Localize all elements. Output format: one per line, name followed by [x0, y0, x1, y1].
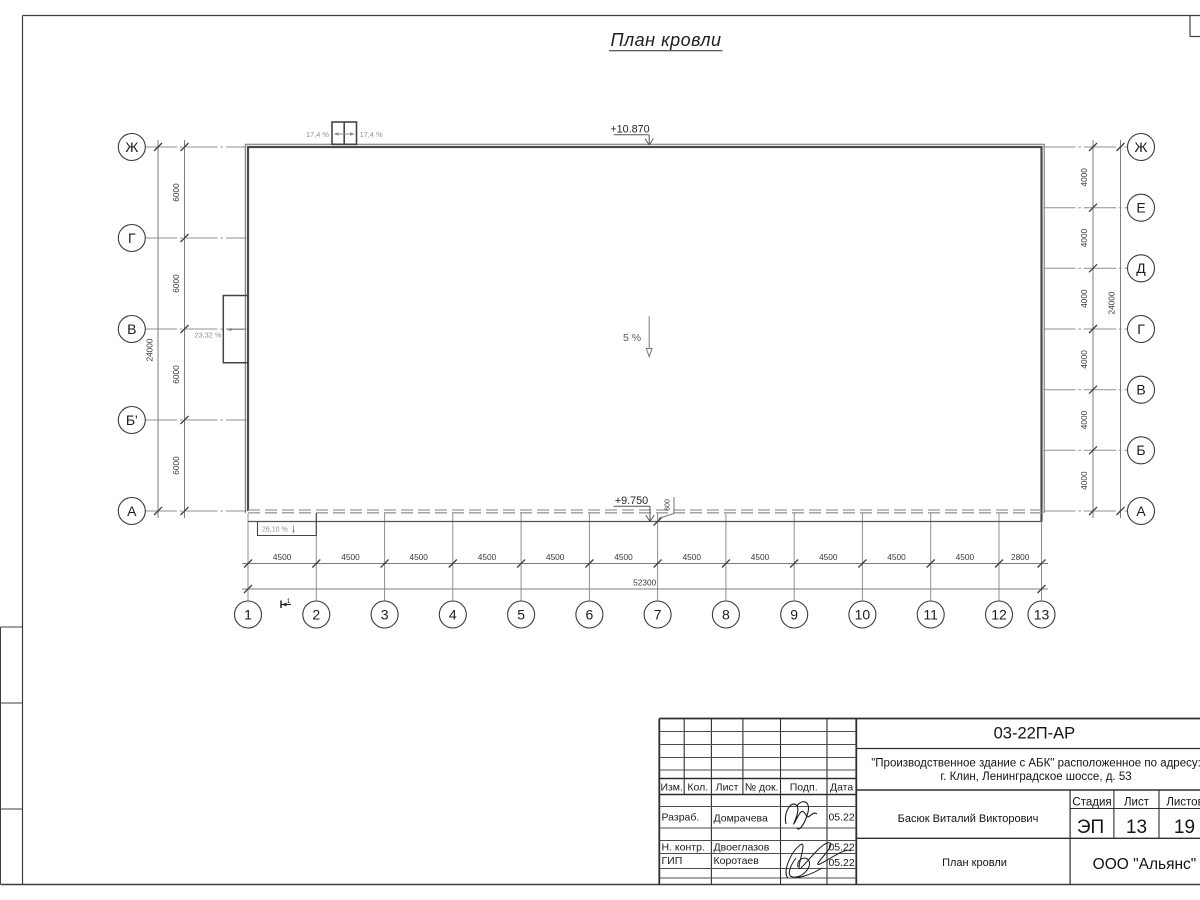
svg-text:4: 4 — [449, 606, 457, 622]
svg-text:4000: 4000 — [1079, 289, 1089, 308]
svg-text:1: 1 — [244, 606, 252, 622]
svg-text:План кровли: План кровли — [942, 857, 1007, 869]
svg-text:Домрачева: Домрачева — [714, 813, 769, 825]
svg-text:Б: Б — [1136, 442, 1145, 458]
svg-text:Е: Е — [1136, 200, 1145, 216]
svg-text:600: 600 — [665, 499, 672, 511]
svg-text:Листов: Листов — [1166, 797, 1200, 809]
svg-text:17,4 %: 17,4 % — [306, 130, 329, 139]
svg-text:Ж: Ж — [1135, 139, 1148, 155]
svg-text:24000: 24000 — [1107, 291, 1117, 314]
svg-text:4000: 4000 — [1079, 471, 1089, 490]
svg-text:Изм.: Изм. — [660, 781, 683, 793]
svg-text:05.22: 05.22 — [828, 857, 854, 869]
svg-text:19: 19 — [1174, 817, 1195, 838]
svg-text:03-22П-АР: 03-22П-АР — [994, 725, 1076, 743]
svg-text:В: В — [1136, 382, 1145, 398]
svg-text:17,4 %: 17,4 % — [360, 130, 383, 139]
svg-text:Кол.: Кол. — [687, 781, 708, 793]
svg-text:В: В — [127, 321, 136, 337]
svg-text:+9.750: +9.750 — [615, 495, 648, 507]
svg-text:11: 11 — [923, 606, 938, 622]
svg-text:Ж: Ж — [125, 139, 138, 155]
svg-text:Н. контр.: Н. контр. — [662, 842, 705, 854]
svg-text:4500: 4500 — [341, 552, 360, 562]
svg-text:Лист: Лист — [1124, 797, 1150, 809]
svg-text:1: 1 — [287, 598, 291, 605]
svg-text:ГИП: ГИП — [662, 855, 683, 867]
svg-text:6000: 6000 — [171, 456, 181, 475]
svg-text:4500: 4500 — [751, 552, 770, 562]
svg-text:4000: 4000 — [1079, 410, 1089, 429]
svg-text:5 %: 5 % — [623, 332, 641, 344]
svg-text:12: 12 — [991, 606, 1007, 622]
svg-text:Г: Г — [1137, 321, 1145, 337]
svg-text:План кровли: План кровли — [610, 30, 721, 50]
svg-text:05.22: 05.22 — [828, 812, 854, 824]
svg-text:Двоеглазов: Двоеглазов — [714, 841, 770, 853]
svg-text:8: 8 — [722, 606, 730, 622]
svg-text:Б': Б' — [126, 412, 138, 428]
svg-text:3: 3 — [381, 606, 389, 622]
svg-text:4000: 4000 — [1079, 228, 1089, 247]
svg-text:5: 5 — [517, 606, 525, 622]
svg-text:А: А — [127, 503, 137, 519]
svg-text:4500: 4500 — [956, 552, 975, 562]
svg-text:Стадия: Стадия — [1072, 797, 1111, 809]
svg-text:13: 13 — [1126, 817, 1147, 838]
svg-text:ЭП: ЭП — [1077, 817, 1104, 838]
svg-text:А: А — [1136, 503, 1146, 519]
svg-text:2: 2 — [312, 606, 320, 622]
svg-text:г. Клин, Ленинградское шоссе,: г. Клин, Ленинградское шоссе, д. 53 — [940, 771, 1131, 783]
svg-text:"Производственное здание с АБК: "Производственное здание с АБК" располож… — [871, 758, 1200, 770]
svg-text:4000: 4000 — [1079, 168, 1089, 187]
svg-text:4500: 4500 — [478, 552, 497, 562]
svg-text:13: 13 — [1034, 606, 1050, 622]
svg-text:6000: 6000 — [171, 274, 181, 293]
svg-text:2800: 2800 — [1011, 552, 1030, 562]
svg-text:6: 6 — [586, 606, 594, 622]
svg-text:10: 10 — [855, 606, 871, 622]
svg-text:4500: 4500 — [273, 552, 292, 562]
svg-text:Коротаев: Коротаев — [714, 855, 760, 867]
svg-text:Дата: Дата — [830, 781, 853, 793]
svg-text:№ док.: № док. — [745, 781, 779, 793]
svg-text:Г: Г — [128, 230, 136, 246]
svg-text:7: 7 — [654, 606, 662, 622]
svg-text:4500: 4500 — [819, 552, 838, 562]
svg-text:Басюк Виталий Викторович: Басюк Виталий Викторович — [898, 813, 1039, 825]
svg-text:4500: 4500 — [614, 552, 633, 562]
svg-text:6000: 6000 — [171, 183, 181, 202]
svg-text:4500: 4500 — [409, 552, 428, 562]
svg-text:4500: 4500 — [683, 552, 702, 562]
svg-text:23,32 %: 23,32 % — [194, 331, 222, 340]
svg-text:+10.870: +10.870 — [610, 124, 649, 136]
svg-text:Разраб.: Разраб. — [662, 811, 700, 823]
svg-text:4500: 4500 — [887, 552, 906, 562]
svg-text:52300: 52300 — [633, 578, 656, 588]
svg-text:Подп.: Подп. — [790, 781, 818, 793]
svg-text:ООО "Альянс": ООО "Альянс" — [1093, 856, 1197, 873]
svg-text:26,10 %: 26,10 % — [262, 527, 288, 534]
svg-text:4500: 4500 — [546, 552, 565, 562]
svg-text:4000: 4000 — [1079, 350, 1089, 369]
svg-text:6000: 6000 — [171, 365, 181, 384]
svg-text:9: 9 — [790, 606, 798, 622]
svg-text:Лист: Лист — [716, 781, 739, 793]
svg-text:24000: 24000 — [145, 338, 155, 361]
svg-text:Д: Д — [1136, 260, 1146, 276]
